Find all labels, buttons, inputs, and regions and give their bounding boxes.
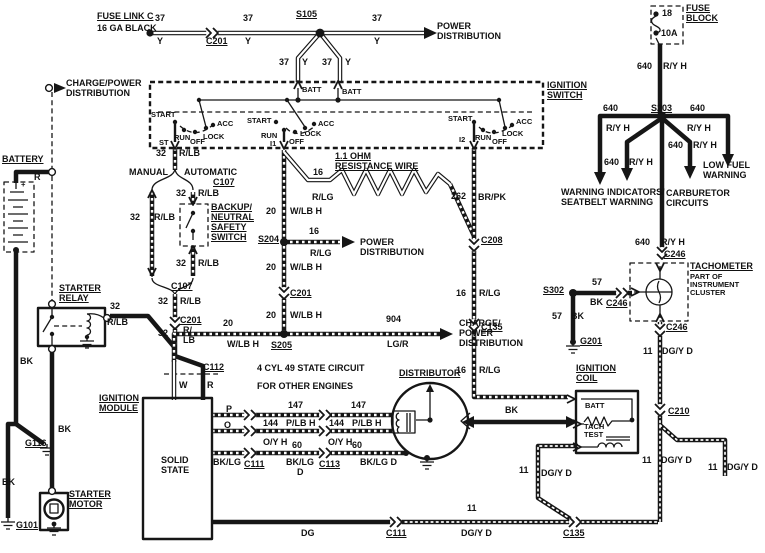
wire-11-label: 11 — [708, 462, 718, 472]
start-label: START — [247, 117, 271, 125]
wire-rlb-label: R/LB — [198, 188, 219, 198]
wire-wlbh-label: W/LB H — [227, 339, 259, 349]
ground-g201-label: G201 — [580, 336, 602, 346]
i2-label: I2 — [459, 136, 465, 144]
resistance-wire-label: 1.1 OHM RESISTANCE WIRE — [335, 151, 418, 171]
run-label: RUN — [174, 134, 190, 142]
s204-power-arrow — [342, 236, 355, 248]
wire-rlb-label: R/LB — [180, 296, 201, 306]
wire-32-label: 32 — [158, 296, 168, 306]
wire-37-label: 37 — [279, 57, 289, 67]
wire-144-label: 144 — [329, 418, 344, 428]
ground-g101 — [1, 518, 15, 529]
connector-c246-label: C246 — [606, 298, 628, 308]
connector-c113-label: C113 — [319, 459, 340, 469]
wire-w-label: W — [179, 380, 188, 390]
ground-g116-label: G116 — [25, 438, 47, 448]
wire-32-label: 32 — [176, 258, 186, 268]
connector-c246-label: C246 — [664, 249, 686, 259]
wire-11-label: 11 — [642, 455, 652, 465]
connector-c135-bottom — [569, 516, 581, 528]
lock-label: LOCK — [203, 133, 224, 141]
st-label: ST — [159, 139, 169, 147]
wire-640-label: 640 — [668, 140, 683, 150]
wire-r-label: R — [207, 380, 214, 390]
power-distribution-label: POWER DISTRIBUTION — [437, 21, 501, 41]
wire-rlb-label: R/LB — [154, 212, 175, 222]
wire-dgyd-label: DG/Y D — [461, 528, 492, 538]
wire-rlg-label: R/LG — [479, 288, 501, 298]
wire-wlbh-label: W/LB H — [290, 262, 322, 272]
manual-label: MANUAL — [129, 167, 168, 177]
carburetor-arrow — [684, 166, 696, 179]
splice-s302-label: S302 — [543, 285, 564, 295]
wire-262-label: 262 — [451, 191, 466, 201]
power-distribution-arrow — [424, 27, 437, 39]
tachometer-note-label: PART OF INSTRUMENT CLUSTER — [690, 273, 739, 297]
wire-plbh-label: P/LB H — [352, 418, 382, 428]
wire-32-label: 32 — [156, 148, 166, 158]
coil-tach-test-label: TACH TEST — [584, 423, 604, 439]
batt-label: BATT — [302, 86, 321, 94]
ground-g201 — [566, 342, 580, 353]
connector-c112-label: C112 — [203, 362, 224, 372]
connector-c111-row1 — [244, 409, 256, 421]
ignition-coil-label: IGNITION COIL — [576, 363, 616, 383]
wire-dgyd-label: DG/Y D — [662, 346, 693, 356]
wire-oyh-label: O/Y H — [263, 437, 287, 447]
connector-c135-label: C135 — [563, 528, 585, 538]
wire-bklgd-label: BK/LG D — [360, 457, 397, 467]
wire-640-label: 640 — [635, 237, 650, 247]
wire-rlg-label: R/LG — [312, 192, 334, 202]
distributor-label: DISTRIBUTOR — [399, 368, 460, 378]
connector-c111-label: C111 — [244, 459, 265, 469]
wire-dgyd-label: DG/Y D — [727, 462, 758, 472]
wire-57-label: 57 — [552, 311, 562, 321]
off-label: OFF — [289, 138, 304, 146]
splice-s302 — [569, 289, 577, 297]
connector-c210-label: C210 — [668, 406, 690, 416]
fuse-block-label: FUSE BLOCK — [686, 3, 718, 23]
connector-c208-label: C208 — [481, 235, 503, 245]
wire-640-label: 640 — [603, 103, 618, 113]
wire-904-label: 904 — [386, 314, 401, 324]
splice-s205-label: S205 — [271, 340, 292, 350]
charge-power-distribution-label: CHARGE/POWER DISTRIBUTION — [66, 78, 142, 98]
wire-dgyd-label: DG/Y D — [661, 455, 692, 465]
s205-charge-arrow — [440, 328, 453, 340]
wire-640-label: 640 — [637, 61, 652, 71]
wire-57-label: 57 — [592, 277, 602, 287]
wire-ryh-label: R/Y H — [687, 123, 711, 133]
wire-37-label: 37 — [372, 13, 382, 23]
connector-c135-label: C135 — [481, 322, 503, 332]
wire-60-label: 60 — [292, 440, 302, 450]
wire-147-label: 147 — [288, 400, 303, 410]
warning-arrow-2 — [621, 168, 633, 181]
wire-rlb-label: R/LB — [107, 317, 128, 327]
low-fuel-warning-label: LOW FUEL WARNING — [703, 160, 750, 180]
automatic-label: AUTOMATIC — [184, 167, 237, 177]
i1-label: I1 — [270, 140, 276, 148]
fuse-10a-label: 10A — [661, 28, 678, 38]
wire-oyh-label: O/Y H — [328, 437, 352, 447]
wire-32-label: 32 — [130, 212, 140, 222]
wire-d-label: D — [297, 467, 304, 477]
charge-distribution-arrow — [54, 83, 66, 93]
wire-32-label: 32 — [158, 328, 168, 338]
splice-s204-label: S204 — [258, 234, 279, 244]
wire-640-label: 640 — [604, 157, 619, 167]
backup-neutral-switch-box — [180, 204, 208, 246]
wire-16-label: 16 — [456, 288, 466, 298]
connector-c111-row2 — [244, 425, 256, 437]
wire-ryh-label: R/Y H — [663, 61, 687, 71]
battery-label: BATTERY — [2, 154, 44, 164]
start-label: START — [448, 115, 472, 123]
splice-s205 — [280, 330, 288, 338]
wire-20-label: 20 — [266, 262, 276, 272]
starter-relay-box — [38, 301, 110, 353]
connector-c113-row3 — [319, 447, 331, 459]
wire-i2-262-brpk — [474, 148, 568, 397]
connector-c107-label: C107 — [171, 281, 193, 291]
starter-motor-label: STARTER MOTOR — [69, 489, 111, 509]
connector-c201-label: C201 — [180, 315, 202, 325]
charge-node-top — [46, 85, 53, 92]
wire-wlbh-label: W/LB H — [290, 206, 322, 216]
wire-bk-label: BK — [2, 477, 15, 487]
warning-seatbelt-label: WARNING INDICATORS/ SEATBELT WARNING — [561, 187, 665, 207]
wire-r-lb-label: R/ LB — [183, 325, 195, 345]
wire-y-label: Y — [302, 57, 308, 67]
acc-label: ACC — [516, 118, 532, 126]
splice-s204 — [280, 238, 288, 246]
acc-label: ACC — [217, 120, 233, 128]
connector-c201-i1 — [278, 287, 290, 299]
wire-ryh-label: R/Y H — [693, 140, 717, 150]
wire-32-label: 32 — [110, 301, 120, 311]
fuse-link-c-label: FUSE LINK C — [97, 11, 154, 21]
splice-s105 — [316, 29, 325, 38]
circuit-note-label: FOR OTHER ENGINES — [257, 381, 353, 391]
battery-feed-node — [49, 169, 56, 176]
coil-batt-label: BATT — [585, 402, 604, 410]
battery-box — [4, 182, 34, 252]
wire-11-label: 11 — [519, 465, 529, 475]
batt-label: BATT — [342, 88, 361, 96]
off-label: OFF — [492, 138, 507, 146]
wire-o-label: O — [224, 420, 231, 430]
wire-r-label: R — [34, 172, 41, 182]
wire-bk-label: BK — [590, 297, 603, 307]
starter-motor-box — [40, 488, 68, 530]
wire-bklg-label: BK/LG — [286, 457, 314, 467]
wire-lgr-label: LG/R — [387, 339, 409, 349]
wire-y-label: Y — [374, 36, 380, 46]
tachometer-label: TACHOMETER — [690, 261, 753, 271]
connector-c111-dg — [390, 516, 402, 528]
wire-st-32-rlb — [110, 148, 203, 400]
wire-32-label: 32 — [176, 188, 186, 198]
wire-ryh-label: R/Y H — [629, 157, 653, 167]
battery-plus-label: + — [21, 181, 25, 189]
fuse-link-gauge-label: 16 GA BLACK — [97, 23, 157, 33]
wire-16-label: 16 — [313, 167, 323, 177]
run-label: RUN — [475, 134, 491, 142]
splice-s203-label: S203 — [651, 103, 672, 113]
start-label: START — [151, 111, 175, 119]
wire-wlbh-label: W/LB H — [290, 310, 322, 320]
wire-bklg-label: BK/LG — [213, 457, 241, 467]
wire-rlb-label: R/LB — [179, 148, 200, 158]
connector-c111-label: C111 — [386, 528, 407, 538]
solid-state-label: SOLID STATE — [161, 455, 189, 475]
wire-y-label: Y — [245, 36, 251, 46]
wire-rlg-label: R/LG — [479, 365, 501, 375]
carburetor-circuits-label: CARBURETOR CIRCUITS — [666, 188, 730, 208]
wire-37-label: 37 — [322, 57, 332, 67]
connector-c210 — [654, 404, 666, 416]
wire-16-label: 16 — [309, 226, 319, 236]
fuse-18-label: 18 — [662, 8, 672, 18]
coil-batt-terminal — [567, 395, 575, 403]
connector-c201-label: C201 — [206, 36, 228, 46]
wire-20-label: 20 — [223, 318, 233, 328]
wire-y-label: Y — [157, 36, 163, 46]
wire-11-label: 11 — [643, 346, 653, 356]
splice-s105-label: S105 — [296, 9, 317, 19]
wire-brpk-label: BR/PK — [478, 192, 506, 202]
wire-640-label: 640 — [690, 103, 705, 113]
connector-c111-row3 — [244, 447, 256, 459]
wire-20-label: 20 — [266, 310, 276, 320]
connector-c208 — [468, 239, 480, 251]
warning-arrow-1 — [594, 172, 606, 185]
wire-147-label: 147 — [351, 400, 366, 410]
wire-y-label: Y — [345, 57, 351, 67]
connector-c246-bottom — [654, 324, 666, 336]
wire-ryh-label: R/Y H — [661, 237, 685, 247]
circuit-note-label: 4 CYL 49 STATE CIRCUIT — [257, 363, 365, 373]
connector-c201-label: C201 — [290, 288, 312, 298]
lock-label: LOCK — [300, 130, 321, 138]
wire-37-label: 37 — [155, 13, 165, 23]
ground-g101-label: G101 — [16, 520, 38, 530]
distributor-body — [392, 383, 470, 461]
starter-relay-label: STARTER RELAY — [59, 283, 101, 303]
wire-bk-label: BK — [571, 311, 584, 321]
wire-bk-label: BK — [20, 356, 33, 366]
wire-dg-label: DG — [301, 528, 315, 538]
ignition-module-label: IGNITION MODULE — [99, 393, 139, 413]
acc-label: ACC — [318, 120, 334, 128]
wire-bk-label: BK — [58, 424, 71, 434]
wire-ryh-label: R/Y H — [606, 123, 630, 133]
wire-11-label: 11 — [467, 503, 477, 513]
backup-neutral-switch-label: BACKUP/ NEUTRAL SAFETY SWITCH — [211, 202, 254, 242]
wire-144-label: 144 — [263, 418, 278, 428]
wire-60-label: 60 — [352, 440, 362, 450]
battery-neg-dot — [13, 247, 19, 253]
lock-label: LOCK — [502, 130, 523, 138]
wire-p-label: P — [226, 404, 232, 414]
wiring-diagram: FUSE LINK C 16 GA BLACK 37 Y C201 37 Y S… — [0, 0, 765, 553]
ignition-switch-label: IGNITION SWITCH — [547, 80, 587, 100]
wire-bk-label: BK — [505, 405, 518, 415]
wire-rlg-label: R/LG — [310, 248, 332, 258]
wire-plbh-label: P/LB H — [286, 418, 316, 428]
wire-37-label: 37 — [243, 13, 253, 23]
connector-c246-label: C246 — [666, 322, 688, 332]
wire-20-label: 20 — [266, 206, 276, 216]
connector-c107-label: C107 — [213, 177, 235, 187]
wire-dgyd-label: DG/Y D — [541, 468, 572, 478]
power-distribution-label: POWER DISTRIBUTION — [360, 237, 424, 257]
wire-rlb-label: R/LB — [198, 258, 219, 268]
